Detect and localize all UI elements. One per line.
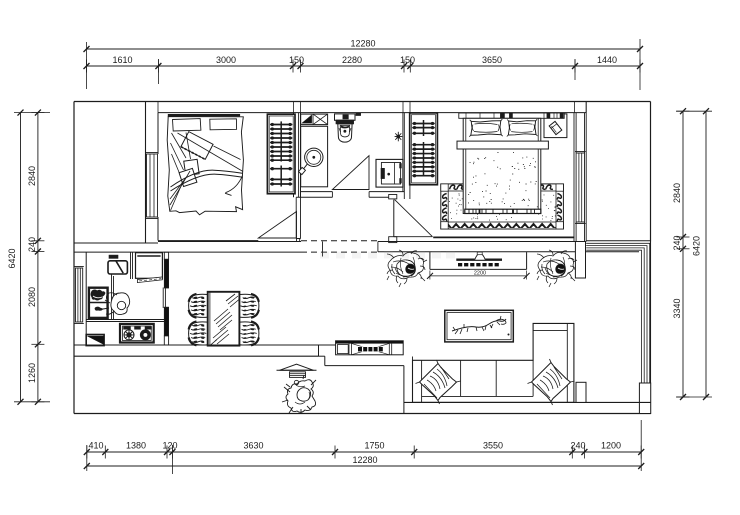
svg-text:3550: 3550 — [483, 441, 503, 451]
svg-text:150: 150 — [400, 55, 415, 65]
svg-text:1260: 1260 — [27, 363, 37, 383]
svg-text:12280: 12280 — [350, 39, 375, 49]
svg-text:1200: 1200 — [601, 441, 621, 451]
svg-text:6420: 6420 — [7, 248, 17, 268]
svg-text:1610: 1610 — [112, 55, 132, 65]
svg-text:2840: 2840 — [672, 183, 682, 203]
svg-text:2080: 2080 — [27, 287, 37, 307]
svg-text:12280: 12280 — [352, 455, 377, 465]
svg-text:1750: 1750 — [364, 441, 384, 451]
svg-text:3650: 3650 — [482, 55, 502, 65]
svg-text:410: 410 — [88, 441, 103, 451]
svg-text:3340: 3340 — [672, 298, 682, 318]
svg-text:150: 150 — [289, 55, 304, 65]
svg-text:2200: 2200 — [474, 271, 486, 277]
svg-text:240: 240 — [27, 237, 37, 252]
svg-text:120: 120 — [162, 441, 177, 451]
svg-text:6420: 6420 — [692, 236, 702, 256]
svg-text:3000: 3000 — [216, 55, 236, 65]
svg-text:240: 240 — [570, 441, 585, 451]
svg-text:2840: 2840 — [27, 166, 37, 186]
svg-text:240: 240 — [672, 235, 682, 250]
svg-text:2280: 2280 — [342, 55, 362, 65]
svg-text:1440: 1440 — [597, 55, 617, 65]
svg-text:3630: 3630 — [243, 441, 263, 451]
svg-text:1380: 1380 — [126, 441, 146, 451]
